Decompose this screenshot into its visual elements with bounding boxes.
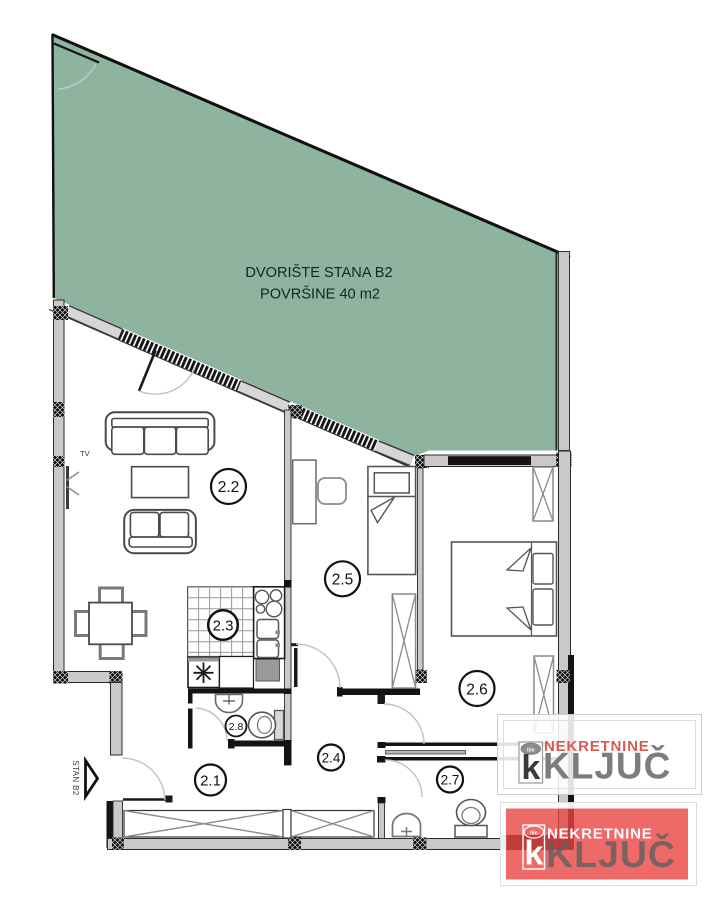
svg-text:2.1: 2.1	[200, 773, 221, 790]
svg-text:2.4: 2.4	[322, 751, 341, 766]
svg-text:2.8: 2.8	[229, 721, 244, 733]
svg-text:2.3: 2.3	[213, 618, 234, 635]
svg-text:2.2: 2.2	[218, 479, 240, 496]
svg-text:KLJUČ: KLJUČ	[546, 833, 676, 875]
svg-text:2.7: 2.7	[441, 773, 460, 788]
svg-text:2.5: 2.5	[332, 572, 354, 589]
svg-text:TV: TV	[80, 449, 90, 458]
svg-text:DVORIŠTE STANA B2: DVORIŠTE STANA B2	[245, 264, 392, 281]
svg-text:KLJUČ: KLJUČ	[543, 745, 671, 787]
svg-text:2.6: 2.6	[466, 681, 488, 698]
svg-text:STAN B2: STAN B2	[71, 760, 80, 796]
svg-text:k: k	[524, 835, 543, 873]
svg-text:k: k	[521, 749, 540, 787]
svg-text:POVRŠINE 40 m2: POVRŠINE 40 m2	[260, 286, 380, 303]
